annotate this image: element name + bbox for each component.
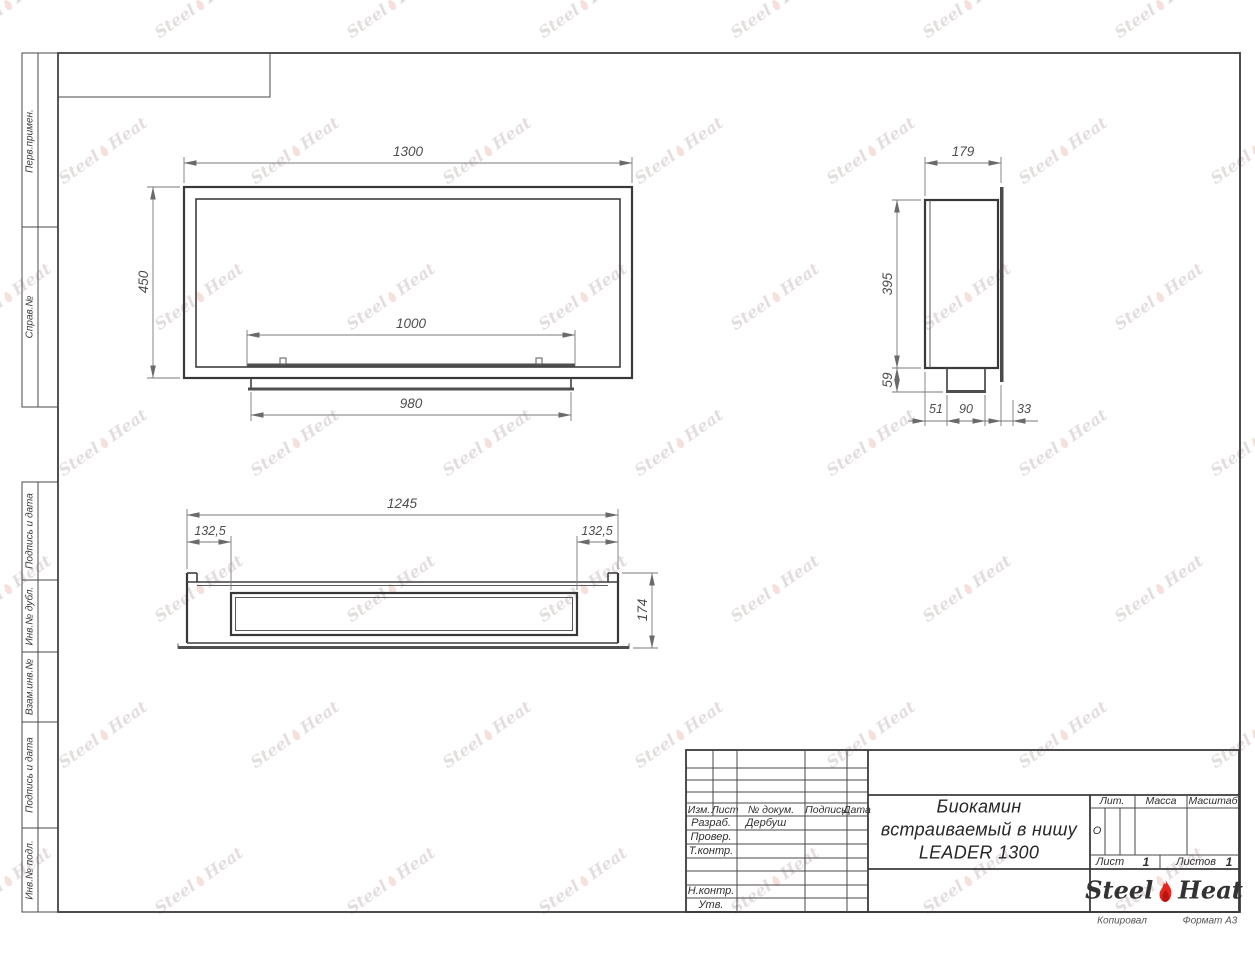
dim-front-height: 450 <box>136 270 151 293</box>
title-block-lines <box>686 750 1239 912</box>
dim-front-opening: 1000 <box>396 316 427 331</box>
dim-side-flange-gap: 33 <box>1017 402 1031 416</box>
dim-bottom-width: 1245 <box>387 496 418 511</box>
dim-side-tray-width: 90 <box>959 402 973 416</box>
top-left-box <box>58 53 270 97</box>
drawing-sheet: Steel Heat Steel Heat Steel Heat Steel H… <box>0 0 1255 970</box>
front-view: 1300 450 1000 980 <box>136 144 632 421</box>
dim-side-depth: 179 <box>952 144 975 159</box>
drawing-linework: 1300 450 1000 980 <box>0 0 1255 970</box>
dim-side-tray-offset: 51 <box>929 402 943 416</box>
dim-front-width: 1300 <box>393 144 424 159</box>
dim-side-tray-height: 59 <box>880 372 895 388</box>
left-margin-stamps <box>22 53 58 912</box>
dim-side-height: 395 <box>880 272 895 295</box>
dim-front-tray: 980 <box>400 396 423 411</box>
dim-bottom-depth: 174 <box>635 599 650 622</box>
side-view: 179 395 59 51 90 33 <box>880 144 1038 426</box>
dim-bottom-left-inset: 132,5 <box>194 524 225 538</box>
dim-bottom-right-inset: 132,5 <box>581 524 612 538</box>
sheet-frame <box>58 53 1240 912</box>
bottom-view: 1245 132,5 132,5 174 <box>178 496 658 649</box>
